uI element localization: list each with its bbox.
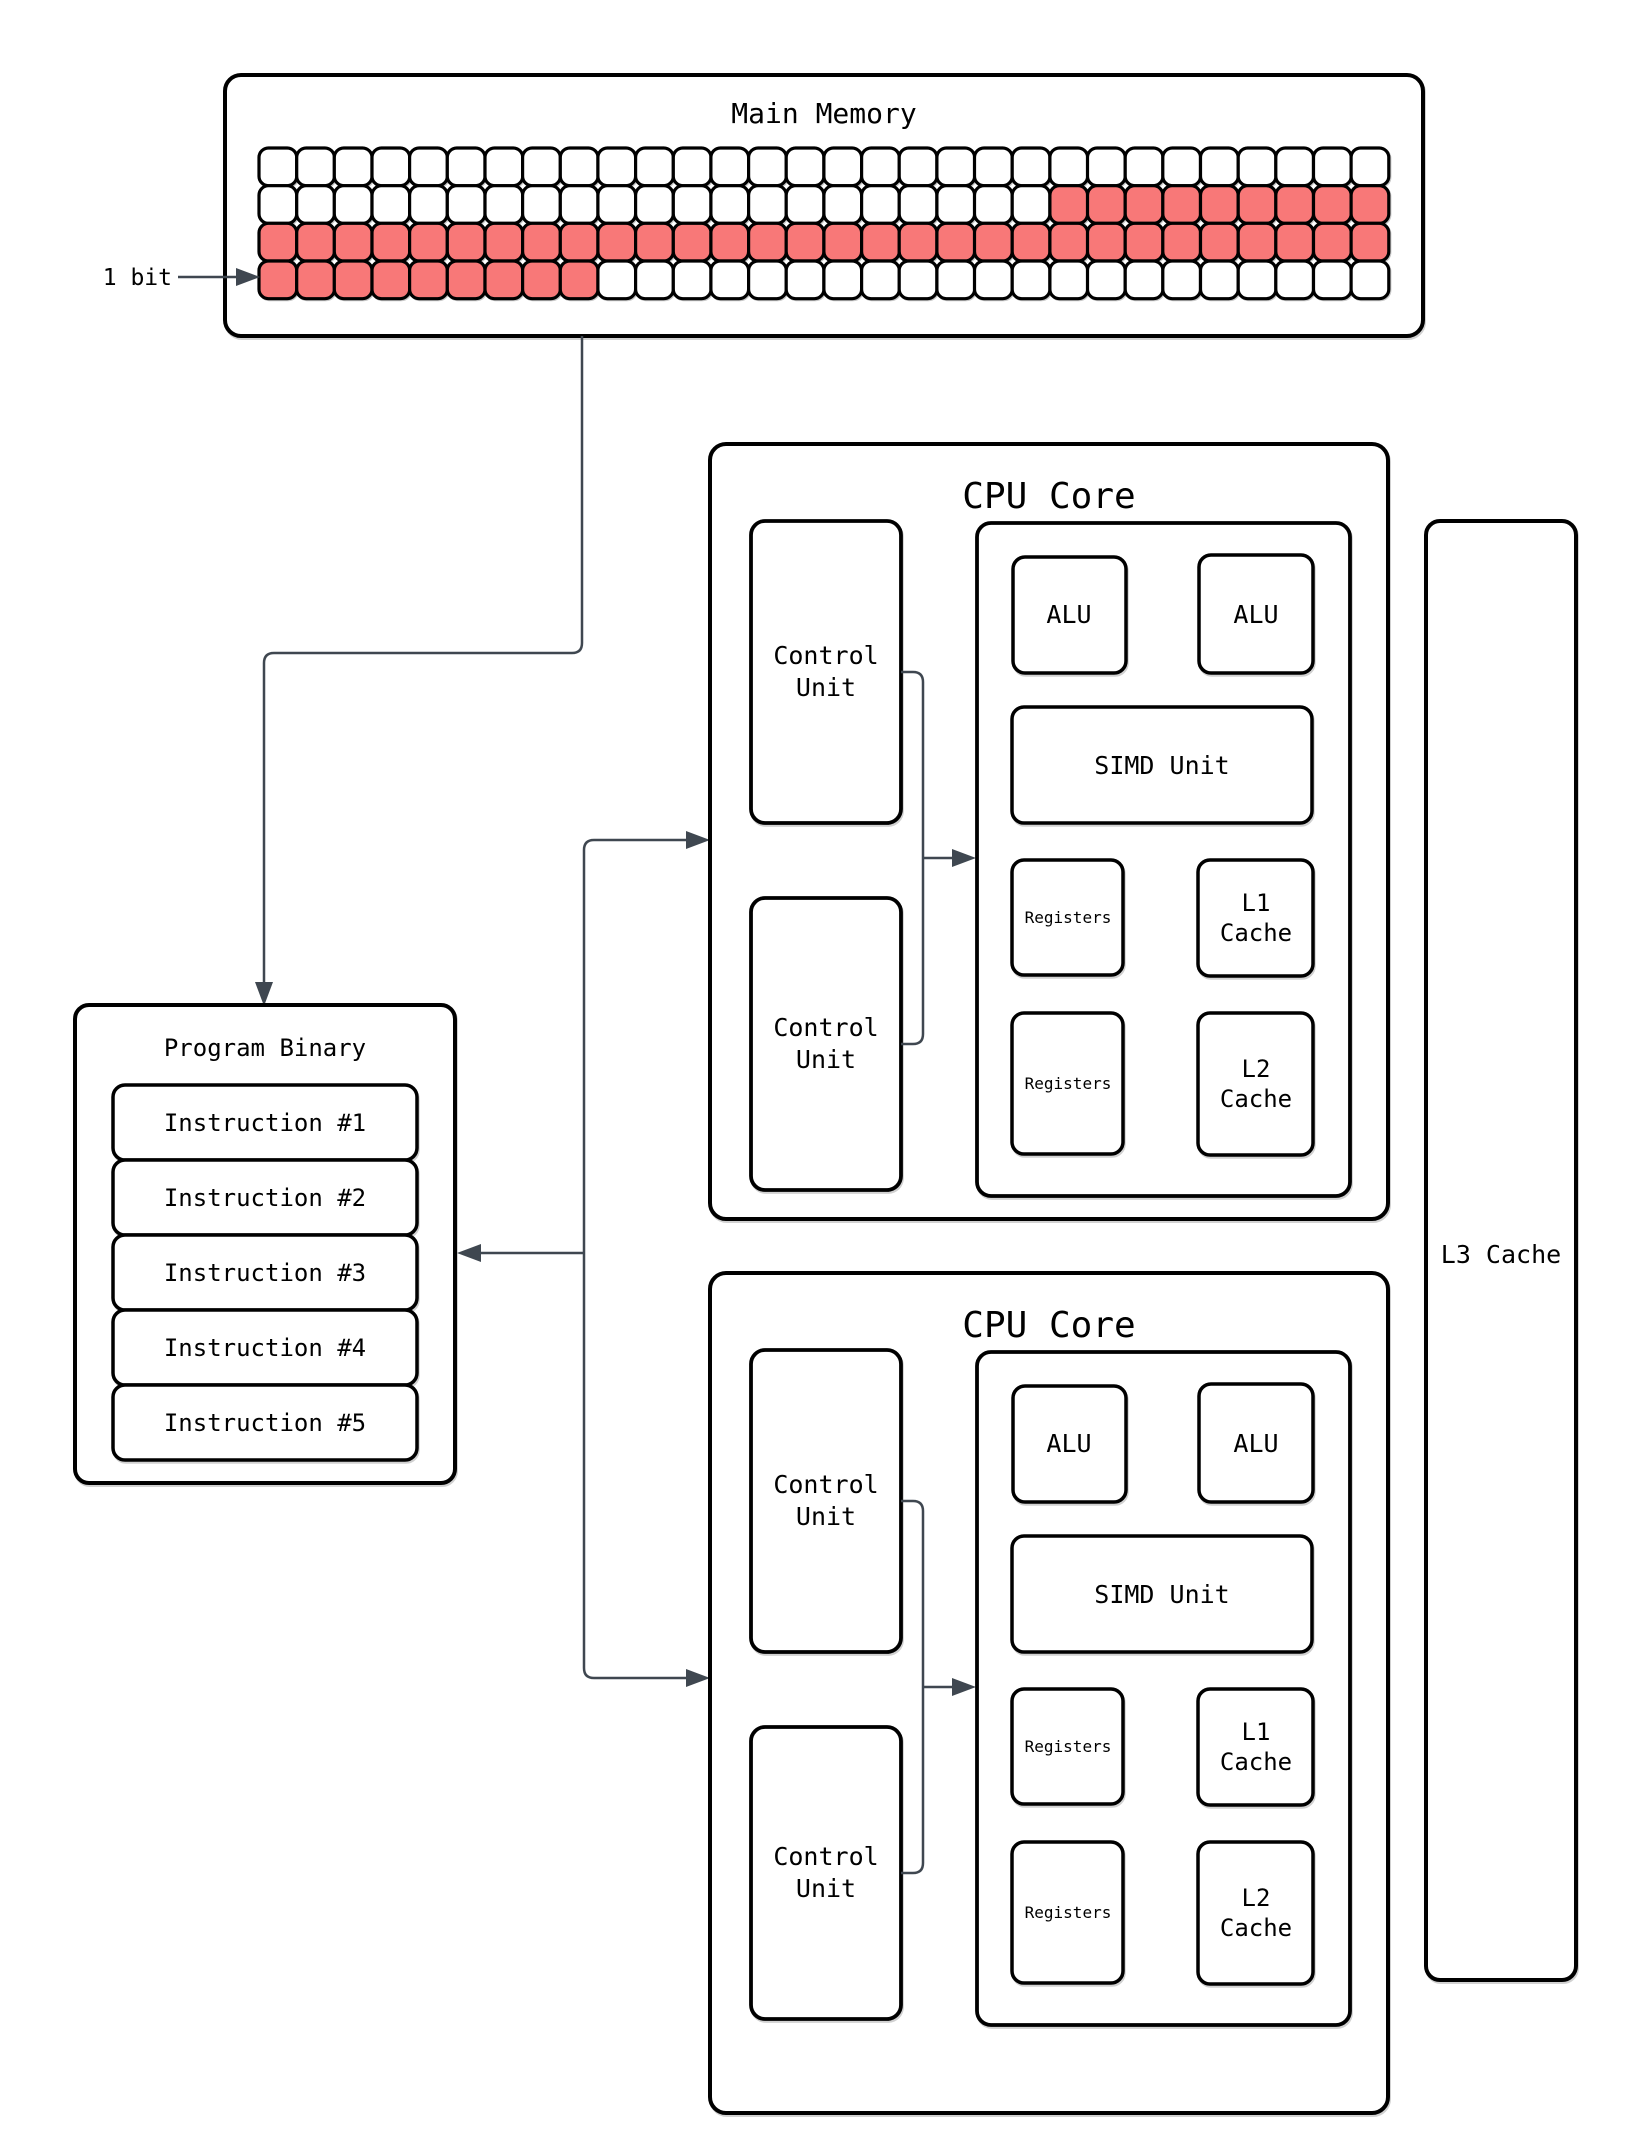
memory-cell-active <box>1351 223 1389 261</box>
memory-cell <box>372 148 410 186</box>
memory-cell <box>899 186 937 224</box>
memory-cell-active <box>560 223 598 261</box>
l2-cache-box <box>1198 1842 1313 1984</box>
connector-memory-to-program-binary <box>255 336 582 1006</box>
memory-cell <box>786 186 824 224</box>
diagram-page: Main Memory 1 bit Program Binary Instruc… <box>0 0 1650 2138</box>
memory-cell <box>1163 261 1201 299</box>
memory-cell <box>673 261 711 299</box>
connector-trunk-line <box>584 840 686 1678</box>
memory-cell-active <box>259 223 297 261</box>
memory-cell-active <box>1201 186 1239 224</box>
memory-cell <box>673 186 711 224</box>
memory-cell <box>410 148 448 186</box>
memory-cell-active <box>1012 223 1050 261</box>
control-unit-box <box>751 898 901 1190</box>
memory-cell-active <box>1088 223 1126 261</box>
registers-label: Registers <box>1025 1074 1112 1093</box>
memory-cell <box>786 148 824 186</box>
memory-cell <box>1088 261 1126 299</box>
instruction-label: Instruction #2 <box>164 1184 366 1212</box>
l3-cache-label: L3 Cache <box>1441 1240 1561 1269</box>
memory-cell <box>1088 148 1126 186</box>
arrowhead-into-program-binary-icon <box>457 1244 481 1262</box>
memory-cell-active <box>410 261 448 299</box>
memory-cell-active <box>1163 186 1201 224</box>
memory-cell <box>786 261 824 299</box>
l2-cache-label-line2: Cache <box>1220 1914 1292 1942</box>
memory-cell <box>636 148 674 186</box>
memory-cell-active <box>1201 223 1239 261</box>
memory-cell <box>937 261 975 299</box>
memory-cell <box>259 186 297 224</box>
memory-cell <box>1125 261 1163 299</box>
l2-cache-label-line1: L2 <box>1242 1055 1271 1083</box>
memory-cell-active <box>824 223 862 261</box>
alu-label: ALU <box>1046 600 1091 629</box>
connector-program-binary-cores <box>457 831 710 1687</box>
memory-cell <box>560 186 598 224</box>
program-binary-title: Program Binary <box>164 1034 366 1062</box>
memory-cell <box>1314 261 1352 299</box>
memory-cell <box>523 186 561 224</box>
l3-cache: L3 Cache <box>1426 521 1576 1980</box>
memory-cell-active <box>523 261 561 299</box>
bit-label: 1 bit <box>103 265 172 291</box>
memory-cell-active <box>636 223 674 261</box>
memory-cell-active <box>1314 186 1352 224</box>
l2-cache-box <box>1198 1013 1313 1155</box>
control-unit-label-line2: Unit <box>796 673 856 702</box>
memory-cell <box>485 148 523 186</box>
memory-cell-active <box>1238 186 1276 224</box>
memory-cell-active <box>447 261 485 299</box>
memory-cell-active <box>1314 223 1352 261</box>
memory-cell <box>862 261 900 299</box>
memory-cell <box>899 261 937 299</box>
memory-cell-active <box>297 261 335 299</box>
l1-cache-label-line1: L1 <box>1242 889 1271 917</box>
memory-cell-active <box>1125 223 1163 261</box>
control-unit-label-line1: Control <box>773 1470 878 1499</box>
memory-cell-active <box>523 223 561 261</box>
memory-cell-active <box>937 223 975 261</box>
memory-cell-active <box>485 261 523 299</box>
memory-cell-active <box>334 223 372 261</box>
memory-cell-active <box>899 223 937 261</box>
arrowhead-into-core2-icon <box>686 1669 710 1687</box>
control-unit-label-line2: Unit <box>796 1502 856 1531</box>
memory-cell <box>1125 148 1163 186</box>
memory-cell-active <box>1050 223 1088 261</box>
control-unit-label-line2: Unit <box>796 1874 856 1903</box>
memory-cell <box>447 186 485 224</box>
memory-cell <box>711 186 749 224</box>
registers-label: Registers <box>1025 1737 1112 1756</box>
l1-cache-box <box>1198 860 1313 976</box>
simd-unit-label: SIMD Unit <box>1094 751 1229 780</box>
memory-cell-active <box>334 261 372 299</box>
memory-cell-active <box>297 223 335 261</box>
registers-label: Registers <box>1025 908 1112 927</box>
memory-cell-active <box>1276 223 1314 261</box>
instruction-label: Instruction #4 <box>164 1334 366 1362</box>
memory-cell <box>862 148 900 186</box>
memory-cell <box>297 148 335 186</box>
memory-cell <box>598 186 636 224</box>
control-unit-label-line1: Control <box>773 1842 878 1871</box>
memory-cell <box>410 186 448 224</box>
memory-cell <box>1314 148 1352 186</box>
memory-cell <box>447 148 485 186</box>
memory-cell <box>1351 261 1389 299</box>
memory-cell <box>1050 261 1088 299</box>
memory-cell <box>1012 186 1050 224</box>
memory-cell <box>975 261 1013 299</box>
l2-cache-label-line2: Cache <box>1220 1085 1292 1113</box>
memory-cell <box>711 148 749 186</box>
memory-cell-active <box>1276 186 1314 224</box>
memory-cell <box>824 186 862 224</box>
cpu-core-2: CPU Core Control Unit Control Unit ALU A… <box>710 1273 1388 2113</box>
memory-cell <box>975 186 1013 224</box>
memory-cell <box>862 186 900 224</box>
memory-cell <box>1050 148 1088 186</box>
memory-cell <box>1012 148 1050 186</box>
memory-cell-active <box>598 223 636 261</box>
control-unit-label-line1: Control <box>773 1013 878 1042</box>
memory-cell-active <box>372 223 410 261</box>
memory-cell <box>598 261 636 299</box>
memory-cell-active <box>1351 186 1389 224</box>
cpu-core-1: CPU Core Control Unit Control Unit ALU A… <box>710 444 1388 1219</box>
memory-cell <box>1276 148 1314 186</box>
memory-cell <box>824 261 862 299</box>
control-unit-label-line1: Control <box>773 641 878 670</box>
memory-cell-active <box>372 261 410 299</box>
arrowhead-into-core1-icon <box>686 831 710 849</box>
memory-cell <box>1201 148 1239 186</box>
memory-cell <box>975 148 1013 186</box>
memory-cell-active <box>1125 186 1163 224</box>
memory-cell <box>1238 148 1276 186</box>
memory-cell <box>1238 261 1276 299</box>
memory-cell <box>334 186 372 224</box>
memory-cell <box>297 186 335 224</box>
memory-cell-active <box>862 223 900 261</box>
registers-label: Registers <box>1025 1903 1112 1922</box>
alu-label: ALU <box>1233 600 1278 629</box>
memory-cell-active <box>975 223 1013 261</box>
memory-cell <box>749 148 787 186</box>
memory-cell <box>485 186 523 224</box>
memory-cell <box>636 186 674 224</box>
memory-cell-active <box>259 261 297 299</box>
memory-cell <box>259 148 297 186</box>
memory-cell <box>636 261 674 299</box>
alu-label: ALU <box>1046 1429 1091 1458</box>
control-unit-label-line2: Unit <box>796 1045 856 1074</box>
program-binary: Program Binary Instruction #1 Instructio… <box>75 1005 455 1483</box>
cpu-architecture-diagram: Main Memory 1 bit Program Binary Instruc… <box>0 0 1650 2138</box>
memory-cell <box>1351 148 1389 186</box>
memory-cell <box>749 261 787 299</box>
l1-cache-label-line2: Cache <box>1220 919 1292 947</box>
memory-cell-active <box>1163 223 1201 261</box>
control-unit-box <box>751 521 901 823</box>
alu-label: ALU <box>1233 1429 1278 1458</box>
memory-cell <box>598 148 636 186</box>
l2-cache-label-line1: L2 <box>1242 1884 1271 1912</box>
memory-cell-active <box>673 223 711 261</box>
memory-cell-active <box>447 223 485 261</box>
memory-cell <box>824 148 862 186</box>
memory-cell-active <box>1050 186 1088 224</box>
memory-cell-active <box>1088 186 1126 224</box>
memory-cell-active <box>560 261 598 299</box>
memory-cell <box>1201 261 1239 299</box>
l1-cache-box <box>1198 1689 1313 1805</box>
cpu-core-title: CPU Core <box>962 476 1135 517</box>
memory-cell <box>673 148 711 186</box>
memory-cell-active <box>1238 223 1276 261</box>
simd-unit-label: SIMD Unit <box>1094 1580 1229 1609</box>
memory-cell <box>899 148 937 186</box>
memory-cell-active <box>485 223 523 261</box>
memory-cell <box>1163 148 1201 186</box>
l1-cache-label-line2: Cache <box>1220 1748 1292 1776</box>
memory-cell <box>523 148 561 186</box>
l1-cache-label-line1: L1 <box>1242 1718 1271 1746</box>
memory-cell <box>711 261 749 299</box>
memory-cell <box>1276 261 1314 299</box>
memory-cell <box>372 186 410 224</box>
memory-cell <box>334 148 372 186</box>
main-memory: Main Memory <box>225 75 1423 336</box>
memory-cell <box>937 148 975 186</box>
control-unit-box <box>751 1727 901 2019</box>
instruction-label: Instruction #5 <box>164 1409 366 1437</box>
memory-cell <box>560 148 598 186</box>
connector-line <box>264 336 582 982</box>
memory-cell-active <box>711 223 749 261</box>
memory-cell-active <box>749 223 787 261</box>
instruction-label: Instruction #1 <box>164 1109 366 1137</box>
memory-cell-active <box>410 223 448 261</box>
cpu-core-title: CPU Core <box>962 1305 1135 1346</box>
memory-cell <box>1012 261 1050 299</box>
memory-cell-active <box>786 223 824 261</box>
control-unit-box <box>751 1350 901 1652</box>
memory-cell <box>749 186 787 224</box>
main-memory-title: Main Memory <box>731 97 916 130</box>
instruction-label: Instruction #3 <box>164 1259 366 1287</box>
memory-cell <box>937 186 975 224</box>
down-arrowhead-icon <box>255 982 273 1006</box>
